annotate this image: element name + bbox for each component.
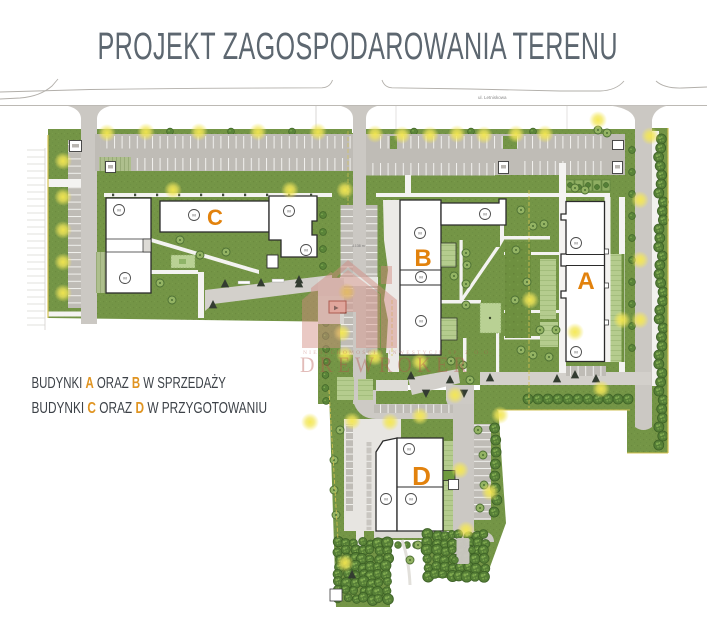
svg-text:DREWROKER: DREWROKER <box>300 352 472 377</box>
svg-text:M: M <box>419 275 422 280</box>
svg-text:M: M <box>287 209 290 214</box>
svg-text:M: M <box>384 497 387 502</box>
svg-text:M: M <box>419 319 422 324</box>
svg-text:M: M <box>409 497 412 502</box>
svg-text:BUDYNKI A ORAZ B W SPRZEDAŻY: BUDYNKI A ORAZ B W SPRZEDAŻY <box>32 374 226 391</box>
svg-text:M: M <box>117 208 120 213</box>
svg-text:A: A <box>577 268 594 295</box>
svg-text:M: M <box>192 213 195 218</box>
svg-text:C: C <box>207 205 223 230</box>
svg-text:ul. Letniskowa: ul. Letniskowa <box>478 95 507 100</box>
svg-text:4.138 m: 4.138 m <box>352 244 365 248</box>
svg-text:M: M <box>123 276 126 281</box>
svg-text:PROJEKT ZAGOSPODAROWANIA TEREN: PROJEKT ZAGOSPODAROWANIA TERENU <box>98 25 618 67</box>
svg-text:M: M <box>304 248 307 253</box>
svg-text:M: M <box>418 231 421 236</box>
svg-text:M: M <box>483 212 486 217</box>
svg-text:M: M <box>407 447 410 452</box>
svg-text:M: M <box>574 241 577 246</box>
svg-text:BUDYNKI C ORAZ D W PRZYGOTOWAN: BUDYNKI C ORAZ D W PRZYGOTOWANIU <box>32 400 268 417</box>
svg-text:B: B <box>414 245 431 272</box>
svg-text:M: M <box>574 350 577 355</box>
svg-text:D: D <box>412 461 431 491</box>
